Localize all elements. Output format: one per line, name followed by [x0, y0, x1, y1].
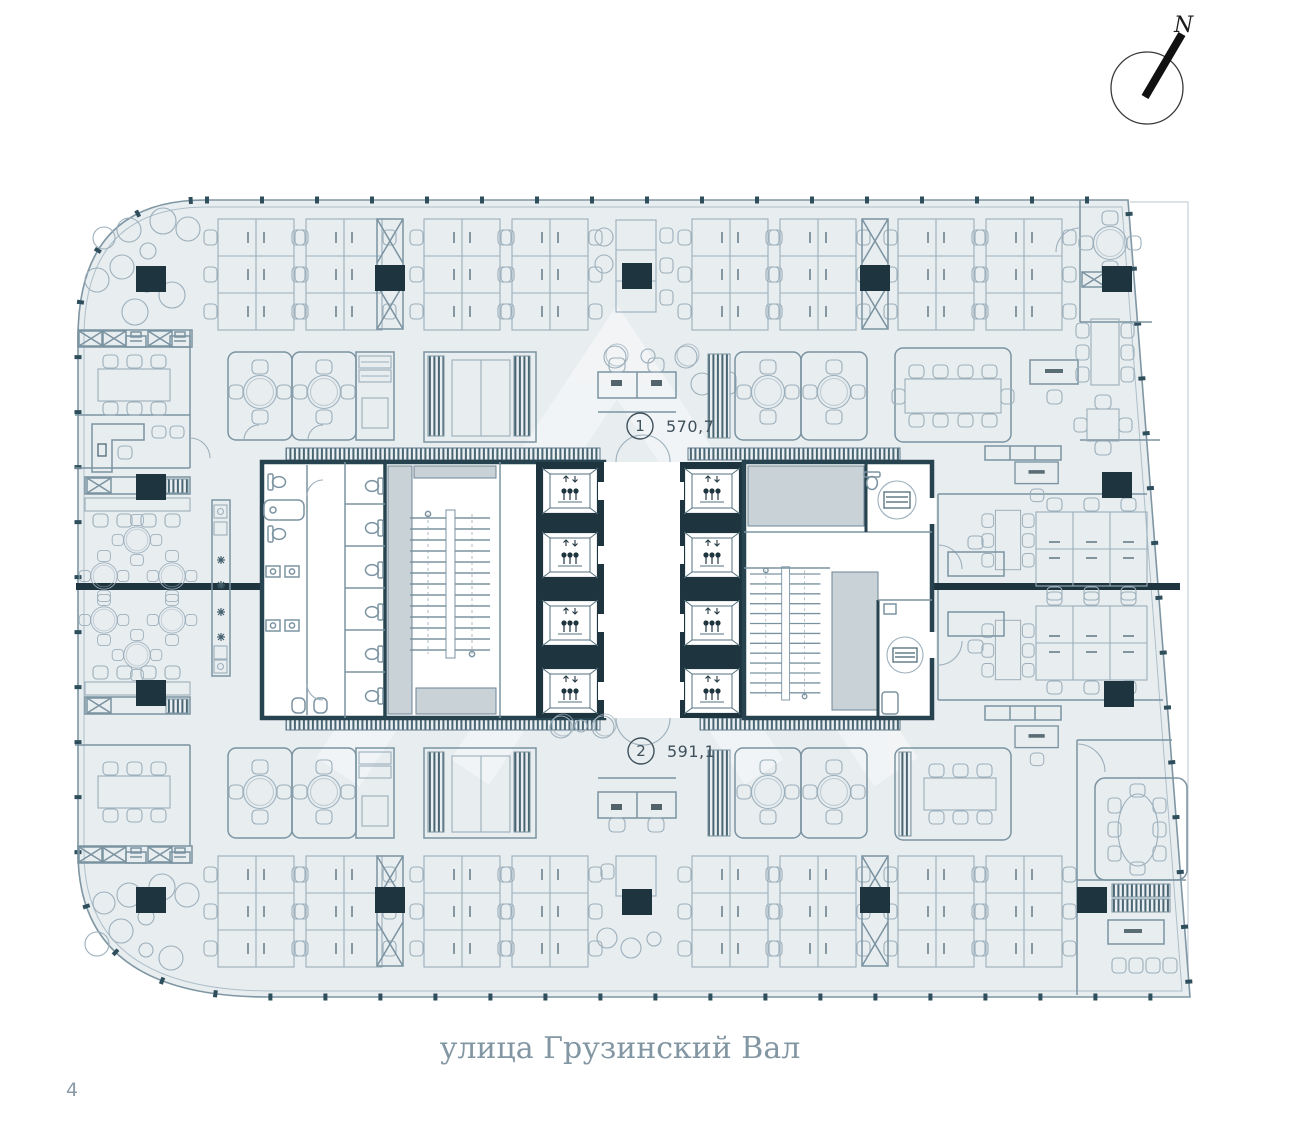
- wardrobe: [708, 750, 730, 836]
- elevator-icon: [684, 668, 740, 714]
- unit-2-area: 591,1: [667, 742, 715, 761]
- elevator-lobby: [604, 435, 680, 745]
- north-arrow-icon: N: [1111, 13, 1194, 124]
- elevator-icon: [684, 468, 740, 514]
- page-number: 4: [66, 1079, 78, 1101]
- elevator-icon: [542, 600, 598, 646]
- elevator-icon: [542, 468, 598, 514]
- unit-2-number: 2: [636, 742, 646, 760]
- elevator-bank-east: [676, 462, 744, 718]
- unit-1-area: 570,7: [666, 417, 714, 436]
- floor-plan-drawing: 1 570,7 2 591,1 N улица Грузинский Вал 4: [0, 0, 1290, 1143]
- elevator-bank-west: [536, 462, 606, 718]
- floor-plan-page: 1 570,7 2 591,1 N улица Грузинский Вал 4: [0, 0, 1290, 1143]
- north-label: N: [1173, 13, 1194, 38]
- elevator-icon: [542, 532, 598, 578]
- elevator-icon: [542, 668, 598, 714]
- unit-1-number: 1: [635, 417, 645, 435]
- elevator-icon: [684, 600, 740, 646]
- elevator-icon: [684, 532, 740, 578]
- street-label: улица Грузинский Вал: [440, 1031, 801, 1066]
